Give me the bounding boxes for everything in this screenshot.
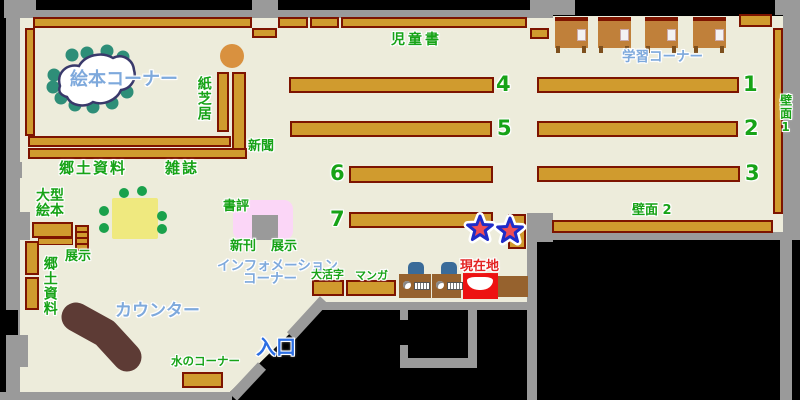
label-kamishibai: 紙芝居 [196, 76, 211, 121]
counter-desk [76, 317, 127, 357]
shelf-number-6: 6 [330, 162, 345, 184]
label-picture-book-corner: 絵本コーナー [70, 71, 178, 90]
label-magazines: 雑誌 [165, 161, 199, 177]
label-current-location: 現在地 [460, 260, 499, 274]
kids-table-chairs [99, 186, 167, 234]
label-new-arrivals: 新刊 [230, 240, 256, 254]
library-floor-map: 絵本コーナー 紙芝居 新聞 郷土資料 雑誌 大型 絵本 展示 郷土資料 カウンタ… [0, 0, 800, 400]
shelf-number-2: 2 [744, 117, 759, 139]
label-large-picture-books-1: 大型 [36, 189, 64, 204]
label-children-books: 児童書 [391, 33, 442, 48]
label-display-west: 展示 [65, 250, 91, 264]
label-display-center: 展示 [271, 240, 297, 254]
label-study-corner: 学習コーナー [622, 50, 703, 64]
shelf-number-5: 5 [497, 117, 512, 139]
label-book-review: 書評 [223, 200, 249, 214]
label-newspaper: 新聞 [248, 140, 274, 154]
label-entrance: 入口 [256, 337, 296, 358]
label-wall-1: 壁面1 [779, 94, 792, 135]
label-information-2: コーナー [243, 272, 297, 286]
label-local-materials-west: 郷土資料 [42, 256, 57, 316]
label-local-materials: 郷土資料 [59, 161, 127, 177]
shelf-number-3: 3 [745, 162, 760, 184]
shelf-number-7: 7 [330, 208, 345, 230]
stool [47, 81, 60, 94]
shelf-number-4: 4 [496, 73, 511, 95]
kamishibai-stool [220, 44, 244, 68]
star-icon [498, 218, 523, 242]
star-icon [468, 216, 493, 240]
label-wall-2: 壁面 2 [632, 204, 672, 218]
stool [66, 49, 79, 62]
label-counter: カウンター [115, 303, 200, 321]
label-manga: マンガ [355, 270, 388, 282]
label-large-picture-books-2: 絵本 [36, 204, 64, 219]
wall-diagonal-north [291, 300, 324, 336]
wall-diagonal-south [233, 366, 262, 397]
shelf-number-1: 1 [743, 73, 758, 95]
label-large-print: 大活字 [311, 269, 344, 281]
label-water-corner: 水のコーナー [171, 355, 240, 367]
